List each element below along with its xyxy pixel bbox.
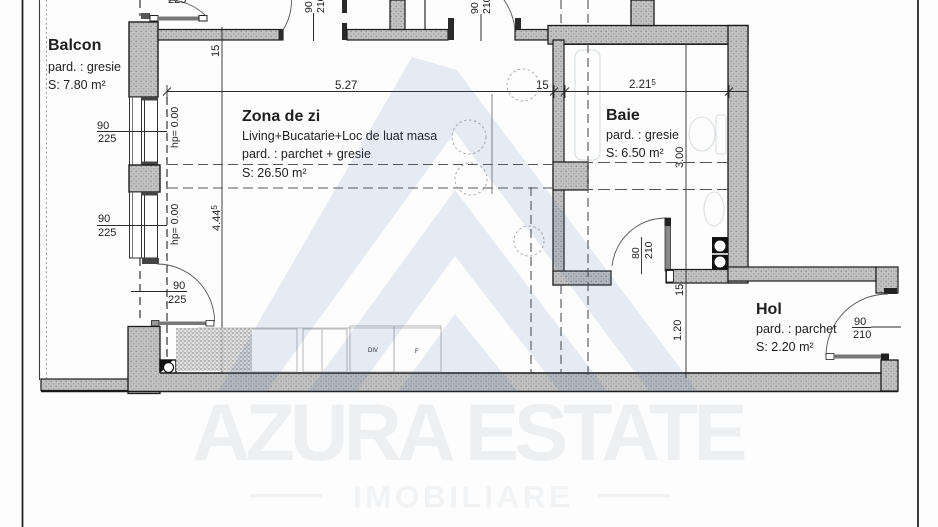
svg-text:S: 26.50 m²: S: 26.50 m² bbox=[242, 166, 307, 180]
svg-text:225: 225 bbox=[98, 133, 116, 145]
svg-text:Balcon: Balcon bbox=[48, 37, 101, 54]
svg-text:S: 7.80 m²: S: 7.80 m² bbox=[48, 78, 106, 92]
svg-text:AZURA ESTATE: AZURA ESTATE bbox=[192, 388, 744, 478]
svg-text:pard. : parchet + gresie: pard. : parchet + gresie bbox=[242, 147, 371, 161]
svg-text:Hol: Hol bbox=[756, 301, 782, 318]
svg-text:pard. : gresie: pard. : gresie bbox=[48, 60, 121, 74]
svg-text:pard. : parchet: pard. : parchet bbox=[756, 322, 837, 336]
svg-text:90: 90 bbox=[173, 280, 185, 292]
svg-text:IMOBILIARE: IMOBILIARE bbox=[353, 479, 574, 515]
svg-text:90: 90 bbox=[854, 316, 866, 328]
svg-text:4.445: 4.445 bbox=[210, 205, 223, 231]
svg-text:Baie: Baie bbox=[606, 107, 640, 124]
svg-text:225: 225 bbox=[168, 0, 186, 6]
svg-text:15: 15 bbox=[210, 45, 222, 57]
svg-text:2.215: 2.215 bbox=[629, 78, 656, 91]
svg-text:pard. : gresie: pard. : gresie bbox=[606, 128, 679, 142]
svg-text:1.20: 1.20 bbox=[672, 320, 684, 341]
svg-text:210: 210 bbox=[643, 241, 655, 259]
svg-text:225: 225 bbox=[98, 227, 116, 239]
svg-text:5.27: 5.27 bbox=[335, 80, 357, 92]
svg-text:S: 6.50 m²: S: 6.50 m² bbox=[606, 146, 664, 160]
svg-text:210: 210 bbox=[853, 329, 871, 341]
svg-text:90: 90 bbox=[97, 120, 109, 132]
svg-text:210: 210 bbox=[315, 0, 327, 13]
svg-text:F: F bbox=[415, 349, 419, 355]
svg-text:3.00: 3.00 bbox=[674, 147, 686, 168]
svg-text:90: 90 bbox=[469, 2, 481, 14]
svg-text:S: 2.20 m²: S: 2.20 m² bbox=[756, 340, 814, 354]
svg-text:Zona de zi: Zona de zi bbox=[242, 108, 320, 125]
svg-text:hp= 0.00: hp= 0.00 bbox=[169, 204, 181, 245]
svg-text:90: 90 bbox=[98, 213, 110, 225]
svg-text:80: 80 bbox=[630, 247, 642, 259]
svg-text:hp= 0.00: hp= 0.00 bbox=[169, 107, 181, 148]
svg-text:210: 210 bbox=[481, 0, 493, 14]
svg-text:90: 90 bbox=[303, 1, 315, 13]
svg-text:225: 225 bbox=[168, 294, 186, 306]
svg-text:15: 15 bbox=[674, 284, 686, 296]
